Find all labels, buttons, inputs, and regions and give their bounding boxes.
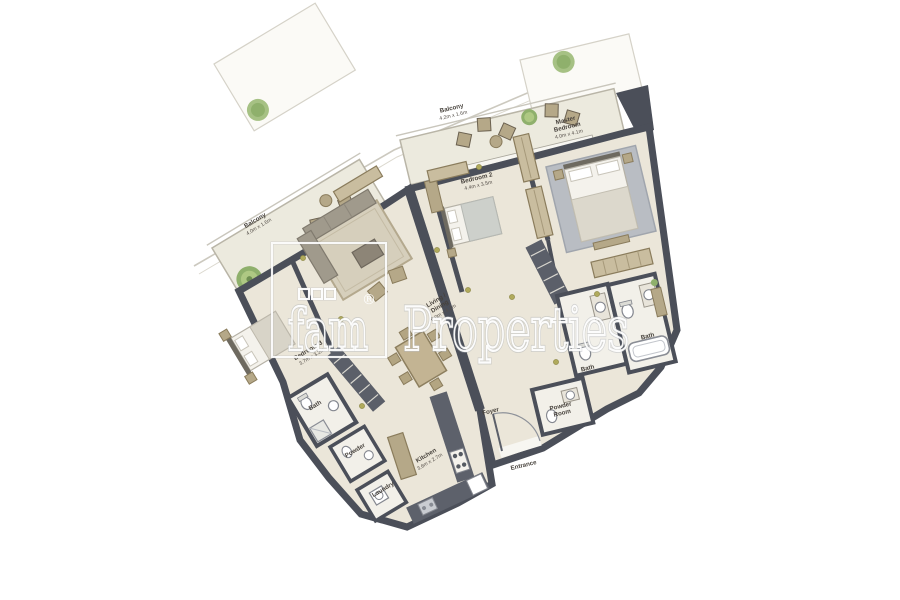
nightstand [447, 248, 457, 258]
nightstand [553, 169, 564, 180]
nightstand [622, 153, 633, 164]
floor-plan-image: Balcony 4.0m x 1.6m Balcony 4.2m x 1.6m … [0, 0, 900, 600]
brand-text: fam [288, 296, 368, 364]
registered-mark: ® [362, 292, 376, 308]
watermark-suffix: Properties [403, 295, 629, 365]
floor-plan-page: Balcony 4.0m x 1.6m Balcony 4.2m x 1.6m … [0, 0, 900, 600]
